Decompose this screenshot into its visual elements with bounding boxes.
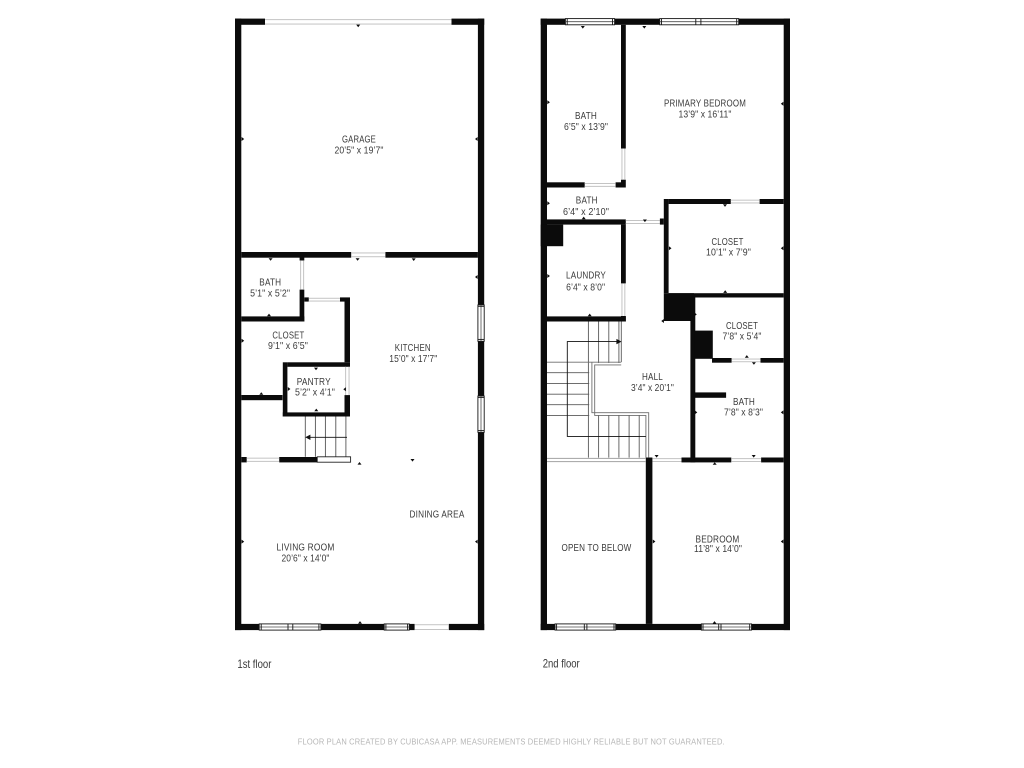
svg-text:LIVING ROOM: LIVING ROOM [277, 543, 335, 554]
svg-text:OPEN TO BELOW: OPEN TO BELOW [562, 543, 632, 554]
svg-text:9’1" x 6’5": 9’1" x 6’5" [268, 341, 308, 352]
svg-text:FLOOR PLAN CREATED BY CUBICASA: FLOOR PLAN CREATED BY CUBICASA APP. MEAS… [298, 736, 725, 746]
svg-text:5’2" x 4’1": 5’2" x 4’1" [295, 388, 335, 399]
svg-text:2nd floor: 2nd floor [543, 657, 580, 670]
svg-text:20’6" x 14’0": 20’6" x 14’0" [282, 553, 330, 564]
svg-text:GARAGE: GARAGE [342, 134, 376, 145]
svg-text:5’1" x 5’2": 5’1" x 5’2" [250, 289, 290, 300]
svg-text:LAUNDRY: LAUNDRY [566, 271, 606, 282]
svg-text:6’4" x 8’0": 6’4" x 8’0" [566, 282, 605, 293]
svg-text:6’5" x 13’9": 6’5" x 13’9" [564, 122, 608, 133]
svg-text:20’5" x 19’7": 20’5" x 19’7" [335, 145, 384, 156]
svg-text:13’9" x 16’11": 13’9" x 16’11" [679, 109, 732, 120]
svg-text:PANTRY: PANTRY [297, 377, 331, 388]
svg-text:7’8" x 5’4": 7’8" x 5’4" [723, 331, 762, 342]
svg-text:DINING AREA: DINING AREA [410, 510, 465, 521]
svg-text:1st floor: 1st floor [237, 658, 271, 671]
svg-text:3’4" x 20’1": 3’4" x 20’1" [631, 383, 674, 394]
svg-text:PRIMARY BEDROOM: PRIMARY BEDROOM [664, 98, 746, 109]
svg-text:KITCHEN: KITCHEN [395, 343, 431, 354]
svg-text:CLOSET: CLOSET [272, 330, 304, 341]
svg-text:11’8" x 14’0": 11’8" x 14’0" [694, 544, 742, 555]
svg-text:10’1" x 7’9": 10’1" x 7’9" [706, 248, 751, 259]
svg-text:HALL: HALL [642, 372, 663, 383]
svg-text:7’8" x 8’3": 7’8" x 8’3" [724, 408, 763, 419]
svg-text:CLOSET: CLOSET [726, 321, 758, 332]
svg-text:15’0" x 17’7": 15’0" x 17’7" [389, 354, 437, 365]
svg-text:BATH: BATH [733, 397, 755, 408]
svg-text:BATH: BATH [575, 111, 597, 122]
svg-text:CLOSET: CLOSET [712, 237, 744, 248]
svg-text:BATH: BATH [259, 278, 281, 289]
svg-text:BATH: BATH [576, 196, 598, 207]
svg-text:6’4" x 2’10": 6’4" x 2’10" [563, 207, 609, 218]
